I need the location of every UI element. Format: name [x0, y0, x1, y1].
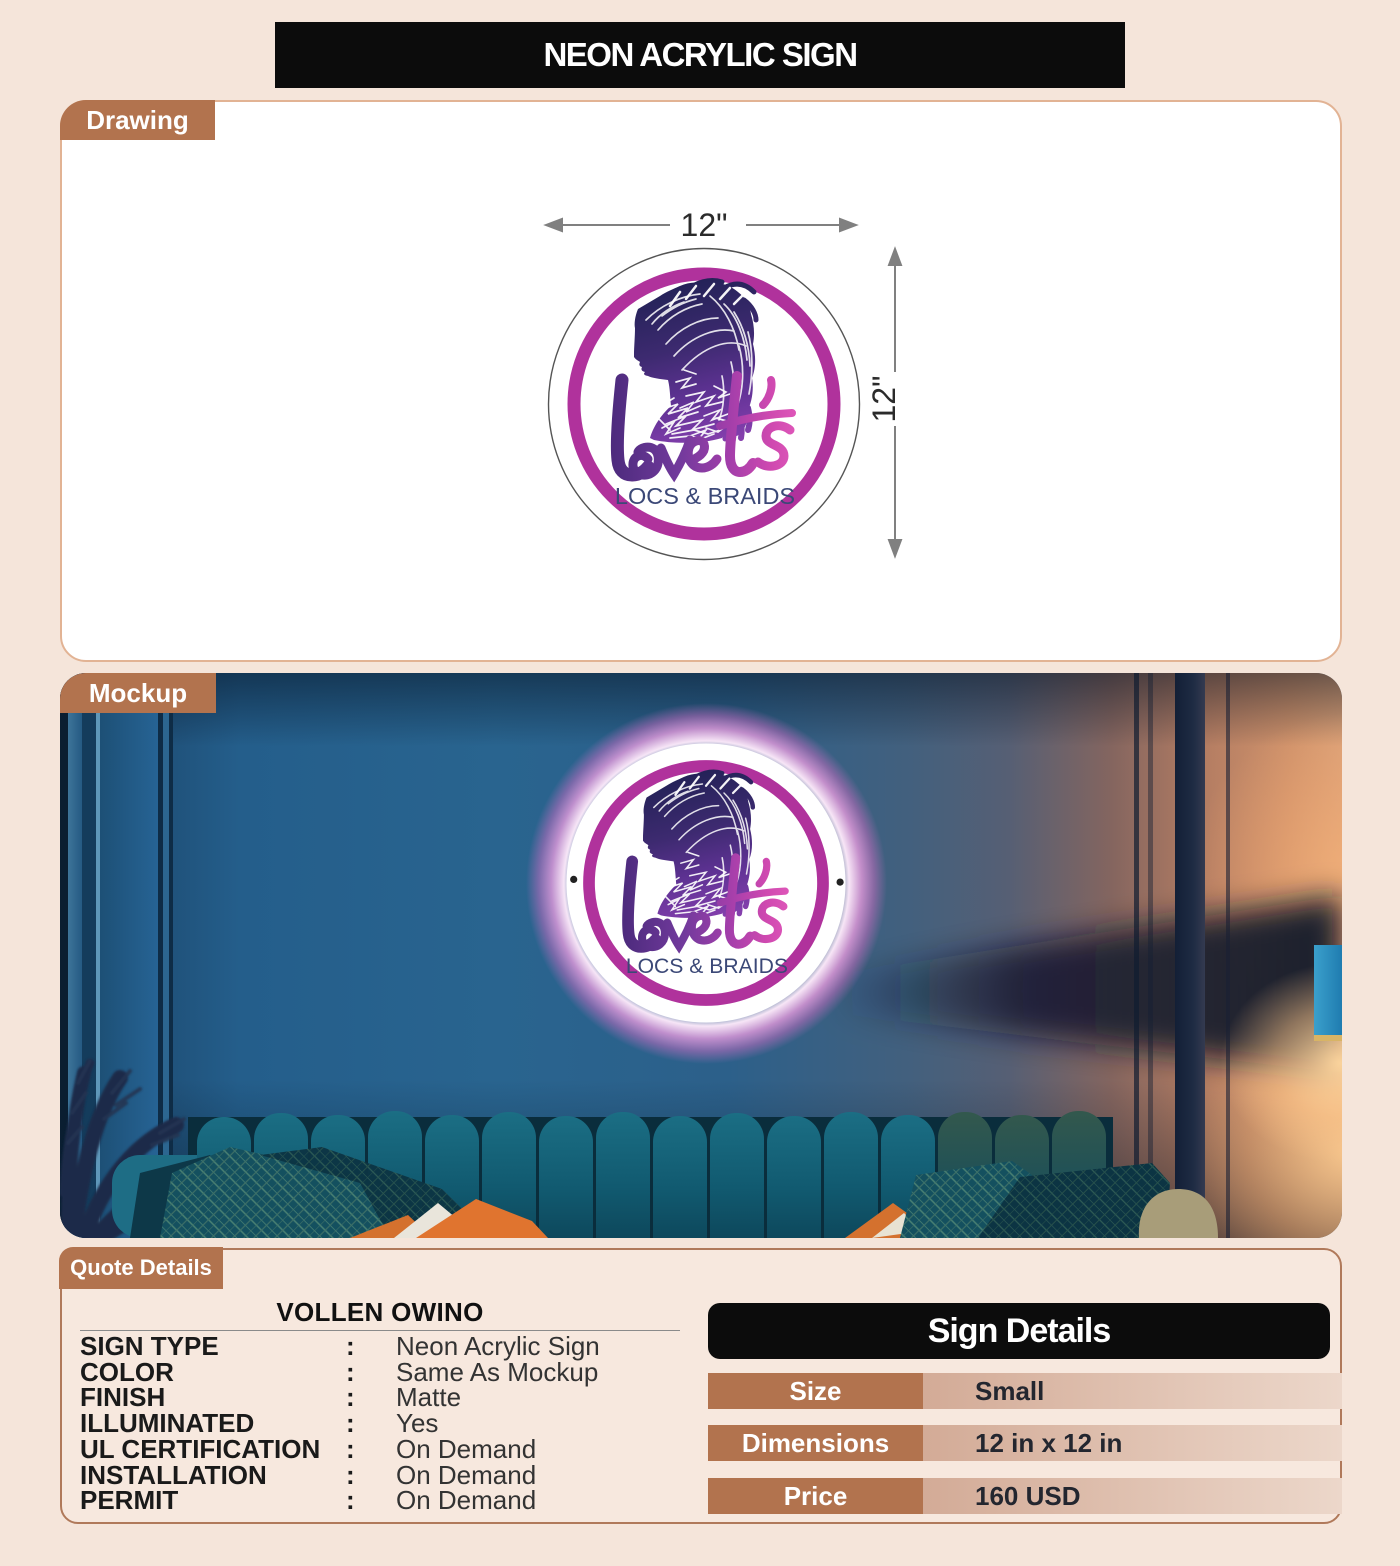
svg-text:12": 12"	[681, 207, 728, 243]
svg-text:12": 12"	[866, 376, 902, 423]
